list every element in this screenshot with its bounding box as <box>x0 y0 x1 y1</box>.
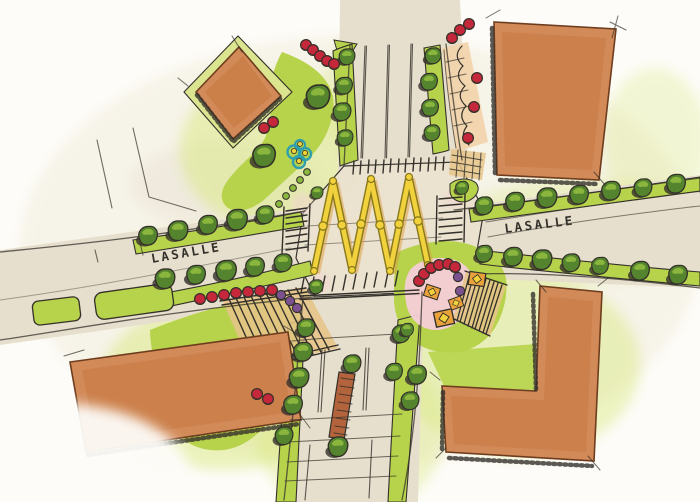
red-shrub-icon <box>252 389 263 400</box>
red-shrub-icon <box>263 394 274 405</box>
purple-shrub-icon <box>285 296 294 305</box>
lasalle-intersection-plan: LASALLE LASALLE <box>0 0 700 502</box>
red-shrub-icon <box>219 290 230 301</box>
red-shrub-icon <box>450 262 461 273</box>
purple-shrub-icon <box>453 272 462 281</box>
site-plan-sketch: LASALLE LASALLE <box>0 0 700 502</box>
purple-shrub-icon <box>455 286 464 295</box>
table-icon <box>433 309 454 327</box>
red-shrub-icon <box>243 287 254 298</box>
red-shrub-icon <box>195 294 206 305</box>
shrub-dot-icon <box>290 185 297 192</box>
trellis-ne <box>449 149 486 180</box>
red-shrub-icon <box>231 288 242 299</box>
red-shrub-icon <box>469 102 480 113</box>
red-shrub-icon <box>267 285 278 296</box>
median-island-west-1 <box>32 296 82 326</box>
red-shrub-icon <box>255 286 266 297</box>
red-shrub-icon <box>472 73 483 84</box>
shrub-dot-icon <box>283 193 290 200</box>
red-shrub-icon <box>329 59 340 70</box>
red-shrub-icon <box>268 117 279 128</box>
shrub-dot-icon <box>276 201 283 208</box>
building-ne <box>492 22 616 184</box>
shrub-dot-icon <box>304 169 311 176</box>
red-shrub-icon <box>464 19 475 30</box>
red-shrub-icon <box>207 292 218 303</box>
lawn-se-between <box>428 344 536 390</box>
purple-shrub-icon <box>276 290 285 299</box>
table-icon <box>468 271 486 286</box>
purple-shrub-icon <box>292 303 301 312</box>
red-shrub-icon <box>463 133 474 144</box>
shrub-dot-icon <box>297 177 304 184</box>
